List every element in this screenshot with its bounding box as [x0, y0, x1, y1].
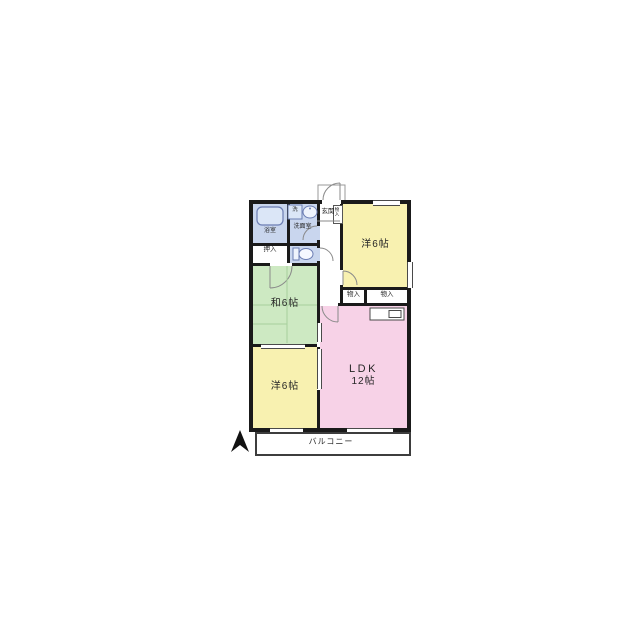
bathroom: [253, 204, 287, 243]
closet-label: 押入: [253, 246, 287, 253]
bedroom-bottom-label: 洋6帖: [253, 381, 317, 393]
north-arrow-icon: [228, 428, 252, 454]
washroom-label: 洗面室: [286, 224, 319, 231]
entrance-door-opening: [322, 200, 341, 204]
tatami-room-label: 和6帖: [253, 298, 317, 310]
entrance-storage-label: 物入: [335, 207, 340, 216]
laundry-label: 洗: [289, 207, 301, 213]
ldk-label: LDK: [320, 363, 407, 376]
wall: [317, 240, 320, 248]
wall: [338, 303, 407, 306]
wall: [305, 344, 317, 347]
wall: [343, 287, 407, 290]
storage-right-label: 物入: [367, 291, 407, 298]
window: [407, 262, 413, 288]
balcony-label: バルコニー: [255, 437, 407, 446]
ldk-size-label: 12帖: [320, 376, 407, 388]
entrance-porch: [318, 185, 345, 200]
wall: [292, 263, 317, 266]
storage-left-label: 物入: [343, 291, 364, 298]
floorplan-image: 浴室 洗 洗面室 押入 玄関 物入 洋6帖 物入 物入 和6帖 洋6帖 LDK …: [0, 0, 640, 640]
bath-label: 浴室: [253, 228, 287, 235]
sliding-door: [261, 344, 305, 349]
sliding-door: [317, 323, 322, 342]
wall: [253, 344, 261, 347]
bedroom-top-label: 洋6帖: [344, 239, 407, 251]
toilet-room: [290, 246, 320, 263]
wall: [317, 390, 320, 428]
wall: [317, 261, 320, 303]
window: [373, 200, 400, 206]
wall: [253, 263, 270, 266]
